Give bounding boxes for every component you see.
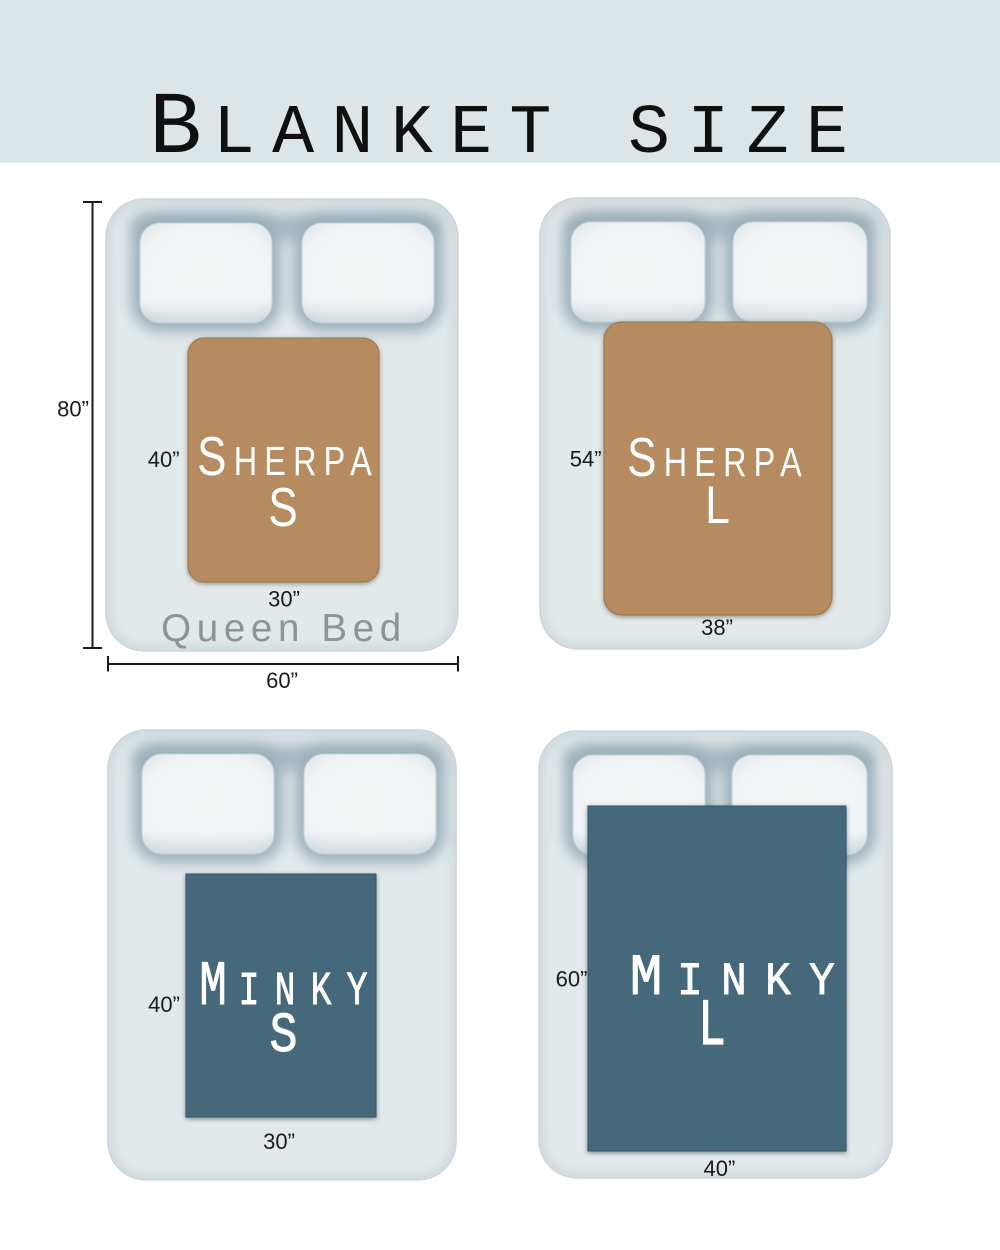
- svg-text:30”: 30”: [268, 587, 300, 612]
- svg-text:I: I: [239, 965, 260, 1019]
- svg-text:S: S: [269, 1004, 297, 1069]
- svg-text:60”: 60”: [266, 668, 298, 693]
- svg-text:Y: Y: [347, 965, 368, 1019]
- svg-text:K: K: [311, 965, 332, 1019]
- svg-text:M: M: [199, 951, 227, 1023]
- svg-text:80”: 80”: [57, 397, 89, 422]
- svg-text:40”: 40”: [148, 447, 180, 472]
- svg-text:38”: 38”: [701, 615, 733, 640]
- svg-text:BLANKET SIZE: BLANKET SIZE: [149, 80, 865, 179]
- svg-text:60”: 60”: [556, 967, 588, 992]
- svg-text:L: L: [705, 476, 730, 534]
- svg-text:54”: 54”: [570, 447, 602, 472]
- svg-text:30”: 30”: [263, 1129, 295, 1154]
- svg-text:40”: 40”: [704, 1156, 736, 1181]
- svg-text:M: M: [630, 945, 663, 1011]
- svg-text:K: K: [765, 957, 791, 1009]
- svg-text:Queen Bed: Queen Bed: [161, 607, 407, 650]
- svg-text:40”: 40”: [148, 992, 180, 1017]
- svg-text:L: L: [698, 991, 726, 1065]
- svg-text:Y: Y: [809, 957, 835, 1009]
- svg-text:S: S: [268, 476, 297, 538]
